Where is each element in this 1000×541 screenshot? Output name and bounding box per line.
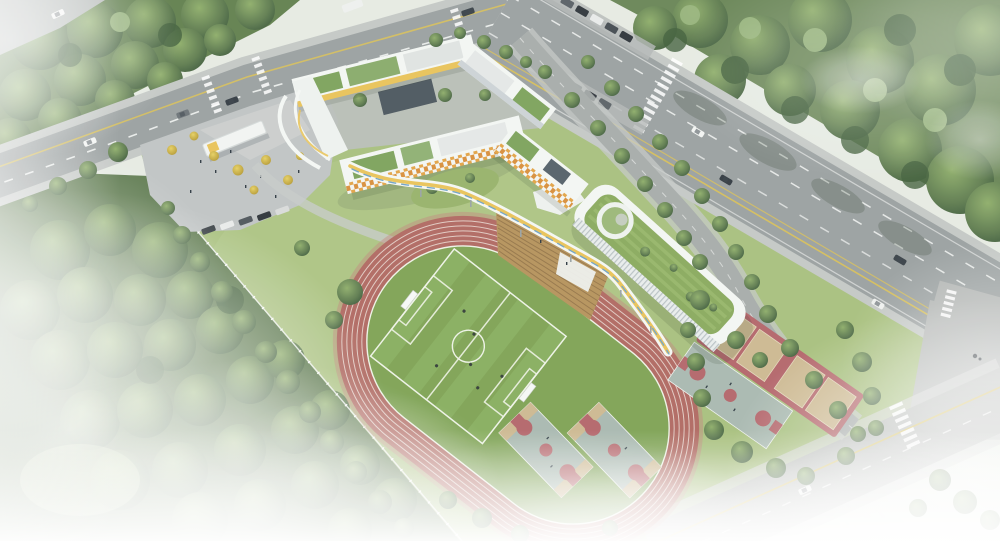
haze-overlay: [0, 0, 1000, 541]
rendering-canvas: [0, 0, 1000, 541]
campus-aerial-rendering: [0, 0, 1000, 541]
